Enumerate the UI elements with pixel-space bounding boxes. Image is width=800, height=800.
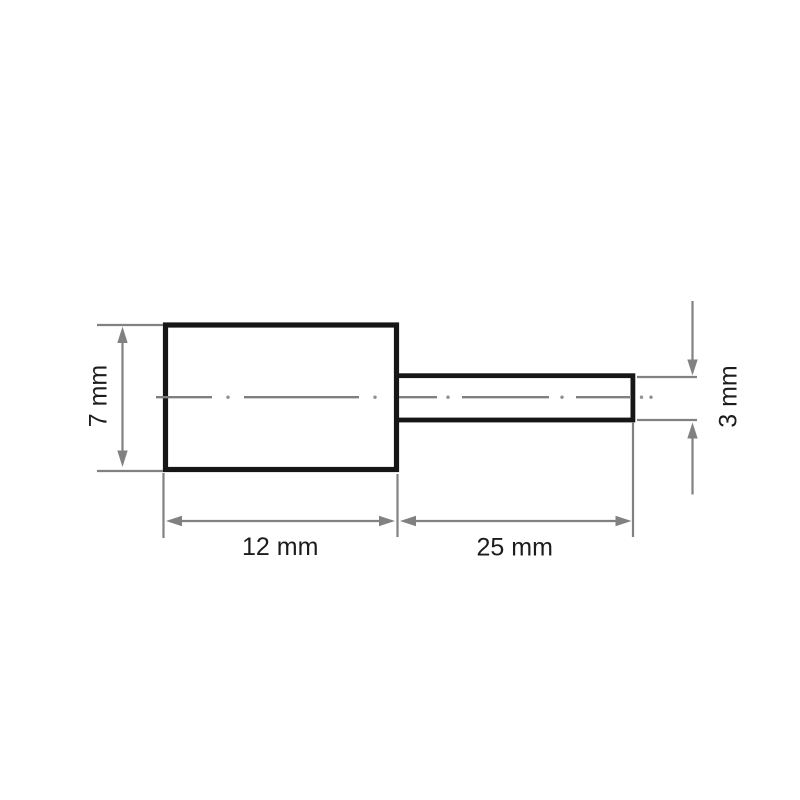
svg-text:25 mm: 25 mm [476, 534, 552, 562]
svg-text:3 mm: 3 mm [715, 365, 743, 428]
svg-text:12 mm: 12 mm [242, 533, 318, 561]
svg-text:7 mm: 7 mm [85, 365, 113, 428]
